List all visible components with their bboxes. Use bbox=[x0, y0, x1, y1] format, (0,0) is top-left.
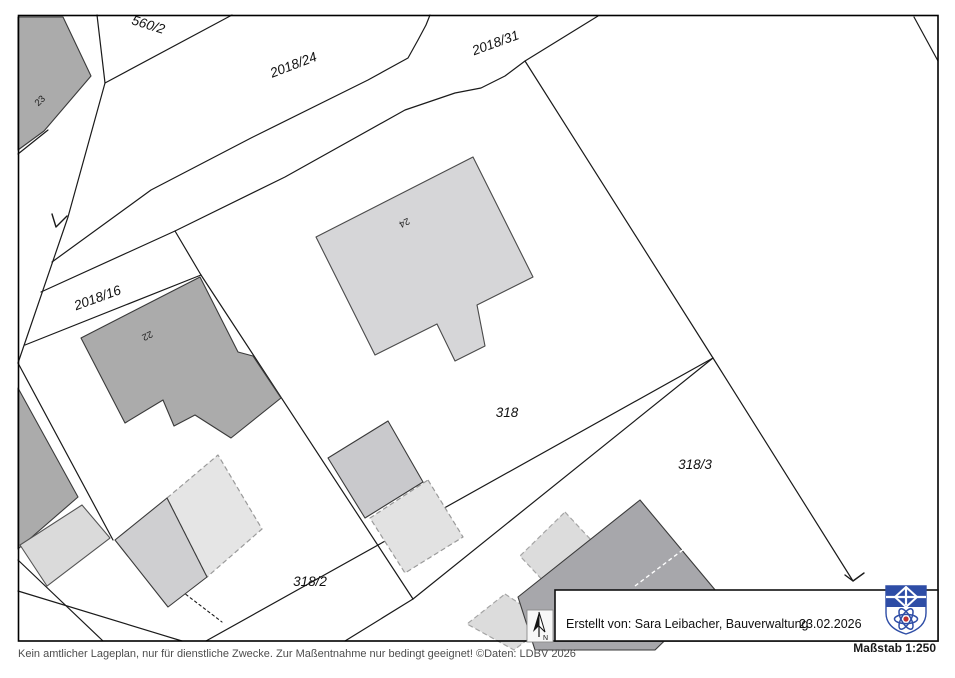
coat-of-arms-nucleus bbox=[903, 616, 908, 621]
info-created-by: Erstellt von: Sara Leibacher, Bauverwalt… bbox=[566, 617, 809, 631]
parcel-label-318: 318 bbox=[496, 405, 519, 420]
info-box: Erstellt von: Sara Leibacher, Bauverwalt… bbox=[555, 590, 938, 641]
info-box-frame bbox=[555, 590, 938, 641]
site-plan-map: 560/2 2018/24 2018/31 2018/16 318 318/3 … bbox=[0, 0, 955, 673]
north-arrow: N bbox=[527, 610, 553, 642]
info-date: 23.02.2026 bbox=[799, 617, 862, 631]
coat-of-arms bbox=[886, 586, 926, 634]
parcel-label-318-2: 318/2 bbox=[293, 574, 327, 589]
parcel-label-318-3: 318/3 bbox=[678, 457, 712, 472]
scale-label: Maßstab 1:250 bbox=[853, 641, 936, 655]
footer-disclaimer: Kein amtlicher Lageplan, nur für dienstl… bbox=[18, 648, 576, 660]
north-label: N bbox=[543, 635, 548, 642]
